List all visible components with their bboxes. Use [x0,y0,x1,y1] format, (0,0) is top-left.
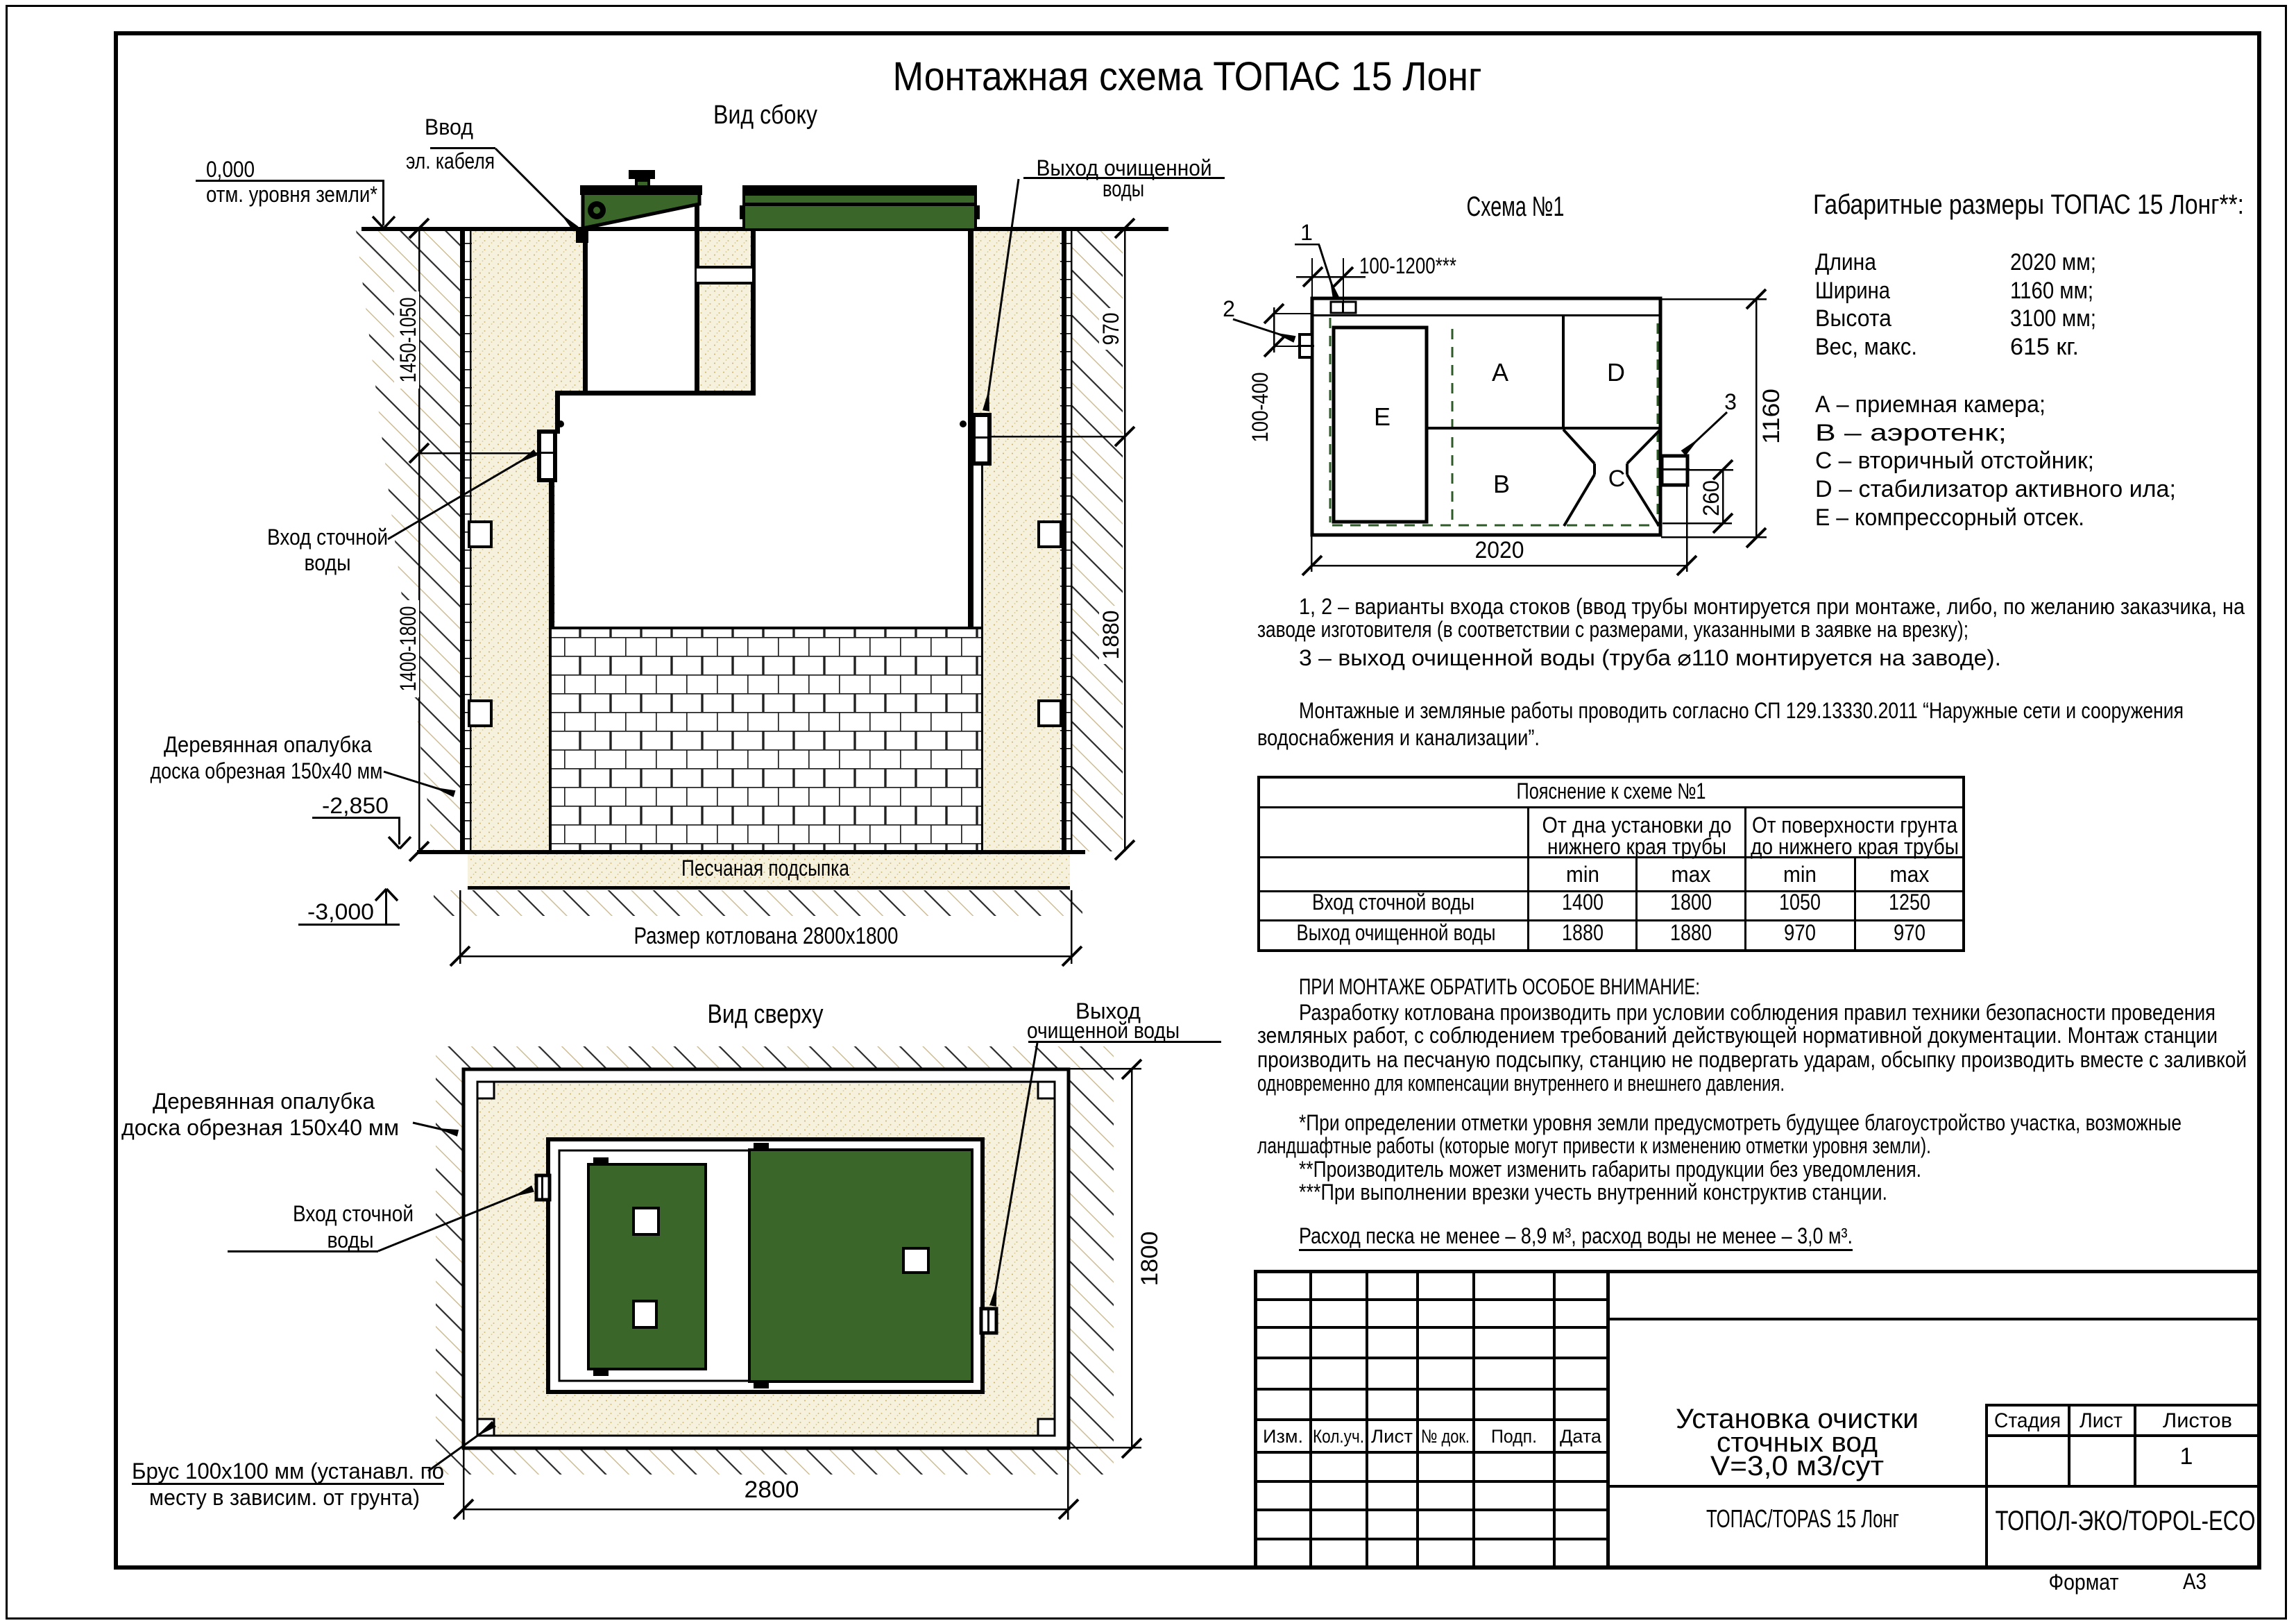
svg-text:1880: 1880 [1670,920,1712,945]
svg-text:доска обрезная 150х40 мм: доска обрезная 150х40 мм [151,758,383,783]
svg-text:Лист: Лист [2080,1409,2123,1432]
svg-text:А – приемная камера;: А – приемная камера; [1815,391,2046,418]
svg-text:max: max [1890,862,1930,887]
svg-text:земляных работ, с соблюдением: земляных работ, с соблюдением требований… [1257,1023,2218,1048]
svg-text:1160 мм;: 1160 мм; [2010,278,2093,304]
svg-text:1: 1 [2180,1443,2193,1470]
svg-text:2020 мм;: 2020 мм; [2010,249,2096,275]
svg-text:1: 1 [1300,220,1313,245]
svg-text:970: 970 [1098,313,1123,346]
svg-text:1160: 1160 [1758,389,1785,444]
svg-text:2: 2 [1223,296,1235,321]
svg-text:3: 3 [1724,389,1737,414]
svg-text:Подп.: Подп. [1491,1426,1537,1447]
svg-text:1400-1800: 1400-1800 [396,606,420,692]
svg-text:1880: 1880 [1562,920,1604,945]
svg-text:970: 970 [1784,920,1816,945]
svg-text:Вид сверху: Вид сверху [708,1000,824,1029]
svg-text:воды: воды [328,1227,374,1252]
svg-text:1880: 1880 [1098,611,1123,660]
svg-text:Лист: Лист [1371,1426,1413,1447]
svg-text:Е – компрессорный отсек.: Е – компрессорный отсек. [1815,504,2084,531]
svg-text:Разработку котлована производи: Разработку котлована производить при усл… [1299,1000,2216,1025]
svg-text:С: С [1608,466,1626,492]
svg-text:Вес, макс.: Вес, макс. [1815,334,1917,360]
svg-text:Высота: Высота [1815,305,1891,332]
svg-text:Габаритные размеры ТОПАС 15 Ло: Габаритные размеры ТОПАС 15 Лонг**: [1813,189,2244,220]
svg-text:ТОПОЛ-ЭКО/TOPOL-ECO: ТОПОЛ-ЭКО/TOPOL-ECO [1996,1506,2256,1536]
svg-text:месту в зависим. от грунта): месту в зависим. от грунта) [149,1485,420,1510]
svg-text:ТОПАС/TOPAS 15 Лонг: ТОПАС/TOPAS 15 Лонг [1706,1504,1899,1533]
svg-text:Размер котлована 2800х1800: Размер котлована 2800х1800 [634,923,899,949]
svg-text:Кол.уч.: Кол.уч. [1313,1426,1364,1447]
svg-text:Дата: Дата [1560,1426,1602,1447]
svg-text:очищенной воды: очищенной воды [1027,1018,1180,1043]
svg-text:эл. кабеля: эл. кабеля [406,148,495,173]
svg-text:до нижнего края трубы: до нижнего края трубы [1751,834,1959,859]
svg-text:заводе изготовителя (в соответ: заводе изготовителя (в соответствии с ра… [1257,617,1968,642]
svg-text:-3,000: -3,000 [307,899,374,924]
svg-text:2800: 2800 [745,1477,799,1503]
svg-text:1800: 1800 [1670,890,1712,915]
svg-text:воды: воды [1103,176,1144,201]
svg-text:Длина: Длина [1815,249,1876,275]
svg-text:1800: 1800 [1137,1232,1163,1286]
svg-text:Схема №1: Схема №1 [1467,192,1565,222]
svg-text:Вход сточной: Вход сточной [267,525,388,550]
svg-text:Формат: Формат [2049,1570,2119,1595]
svg-text:водоснабжения и канализации”.: водоснабжения и канализации”. [1257,725,1540,750]
svg-text:E: E [1374,402,1391,431]
svg-text:Вид сбоку: Вид сбоку [713,101,817,130]
svg-text:одновременно для компенсации в: одновременно для компенсации внутреннего… [1257,1071,1785,1096]
svg-text:Вход сточной: Вход сточной [293,1201,414,1226]
svg-text:доска обрезная 150х40 мм: доска обрезная 150х40 мм [121,1115,399,1140]
svg-text:Стадия: Стадия [1994,1409,2061,1432]
svg-text:отм. уровня земли*: отм. уровня земли* [206,182,377,207]
svg-text:Монтажные и земляные работы пр: Монтажные и земляные работы проводить со… [1299,698,2184,723]
svg-text:Брус 100х100 мм (устанавл. по: Брус 100х100 мм (устанавл. по [132,1459,444,1484]
svg-text:Ввод: Ввод [425,114,473,139]
svg-text:V=3,0 м3/сут: V=3,0 м3/сут [1710,1451,1884,1481]
svg-text:Деревянная опалубка: Деревянная опалубка [164,732,372,757]
svg-text:А: А [1492,358,1508,386]
svg-text:260: 260 [1699,480,1724,516]
svg-text:воды: воды [305,550,351,575]
svg-text:ПРИ МОНТАЖЕ ОБРАТИТЬ ОСОБОЕ ВН: ПРИ МОНТАЖЕ ОБРАТИТЬ ОСОБОЕ ВНИМАНИЕ: [1299,974,1700,999]
svg-text:Ширина: Ширина [1815,278,1890,304]
svg-text:нижнего края трубы: нижнего края трубы [1547,834,1726,859]
svg-text:3 – выход очищенной воды (труб: 3 – выход очищенной воды (труба ⌀110 мон… [1299,645,2001,670]
svg-text:Выход очищенной воды: Выход очищенной воды [1297,920,1496,945]
svg-text:В – аэротенк;: В – аэротенк; [1815,420,2007,446]
svg-text:производить на песчаную подсып: производить на песчаную подсыпку, станци… [1257,1047,2247,1072]
svg-text:Расход песка не менее – 8,9 м³: Расход песка не менее – 8,9 м³, расход в… [1299,1223,1853,1248]
svg-text:3100 мм;: 3100 мм; [2010,305,2096,332]
svg-text:Вход сточной воды: Вход сточной воды [1312,890,1474,915]
svg-text:-2,850: -2,850 [322,793,389,818]
svg-text:1, 2 – варианты входа стоков: 1, 2 – варианты входа стоков (ввод трубы… [1299,594,2245,619]
svg-text:Деревянная опалубка: Деревянная опалубка [153,1089,375,1114]
svg-text:1050: 1050 [1779,890,1821,915]
svg-text:D: D [1607,358,1625,386]
svg-text:min: min [1566,862,1599,887]
svg-text:max: max [1672,862,1711,887]
svg-text:1450-1050: 1450-1050 [396,298,420,383]
svg-text:С – вторичный отстойник;: С – вторичный отстойник; [1815,448,2094,474]
svg-text:615 кг.: 615 кг. [2010,334,2079,360]
svg-text:**Производитель может изменить: **Производитель может изменить габариты … [1299,1157,1921,1182]
svg-text:Изм.: Изм. [1263,1426,1303,1447]
svg-text:D – стабилизатор активного ила: D – стабилизатор активного ила; [1815,476,2176,502]
svg-text:100-1200***: 100-1200*** [1359,253,1456,278]
svg-text:970: 970 [1894,920,1925,945]
svg-text:ландшафтные работы (которые мо: ландшафтные работы (которые могут привес… [1257,1133,1931,1158]
svg-text:0,000: 0,000 [206,157,255,182]
svg-text:1250: 1250 [1889,890,1930,915]
svg-text:1400: 1400 [1562,890,1604,915]
svg-text:100-400: 100-400 [1248,373,1273,443]
svg-text:2020: 2020 [1475,537,1524,563]
svg-text:*При определении отметки уровн: *При определении отметки уровня земли пр… [1299,1110,2182,1135]
svg-text:***При выполнении врезки учест: ***При выполнении врезки учесть внутренн… [1299,1180,1887,1205]
svg-text:А3: А3 [2183,1569,2206,1594]
svg-text:Монтажная схема ТОПАС 15 Лонг: Монтажная схема ТОПАС 15 Лонг [893,54,1482,99]
svg-text:Пояснение к схеме №1: Пояснение к схеме №1 [1517,779,1706,804]
svg-text:min: min [1783,862,1817,887]
svg-text:В: В [1493,470,1510,498]
svg-text:Листов: Листов [2163,1409,2232,1432]
svg-text:№ док.: № док. [1421,1426,1470,1447]
svg-text:Песчаная подсыпка: Песчаная подсыпка [681,856,849,881]
